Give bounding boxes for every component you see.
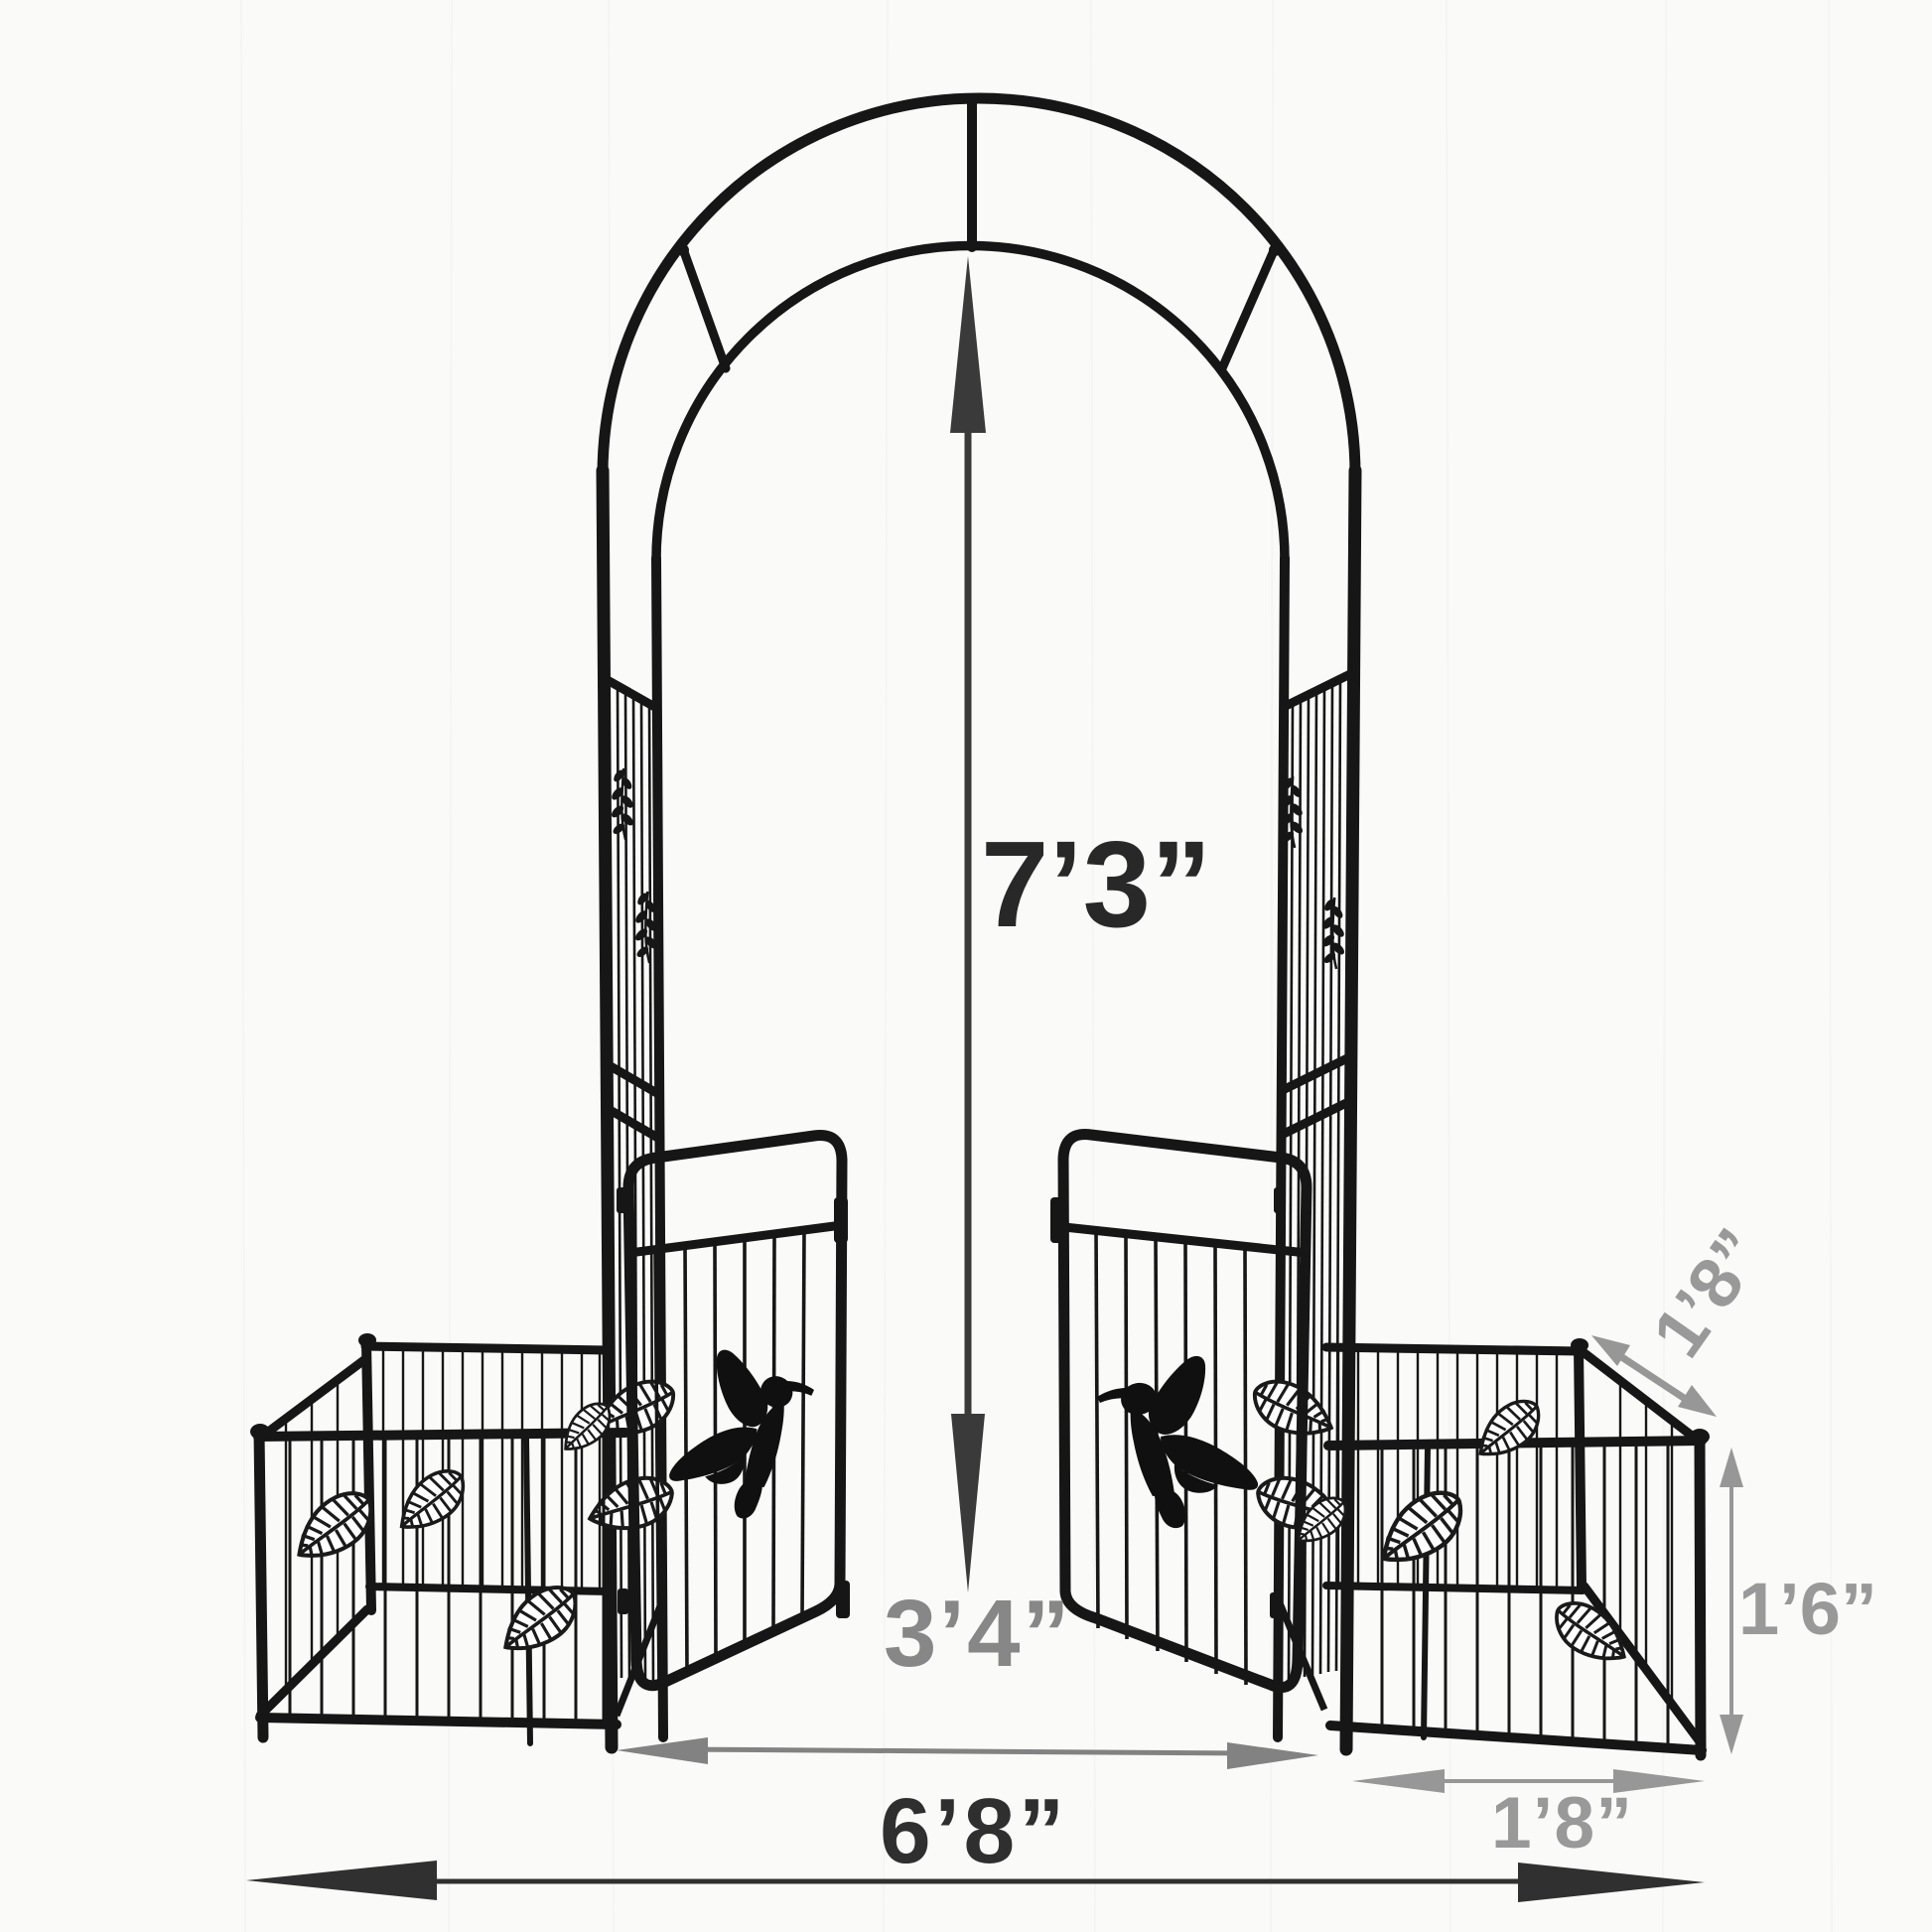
svg-text:7’3”: 7’3”	[981, 817, 1212, 953]
svg-text:1’6”: 1’6”	[1738, 1568, 1877, 1650]
svg-text:3’4”: 3’4”	[884, 1581, 1071, 1687]
svg-text:6’8”: 6’8”	[880, 1779, 1068, 1882]
svg-text:1’8”: 1’8”	[1491, 1783, 1633, 1863]
